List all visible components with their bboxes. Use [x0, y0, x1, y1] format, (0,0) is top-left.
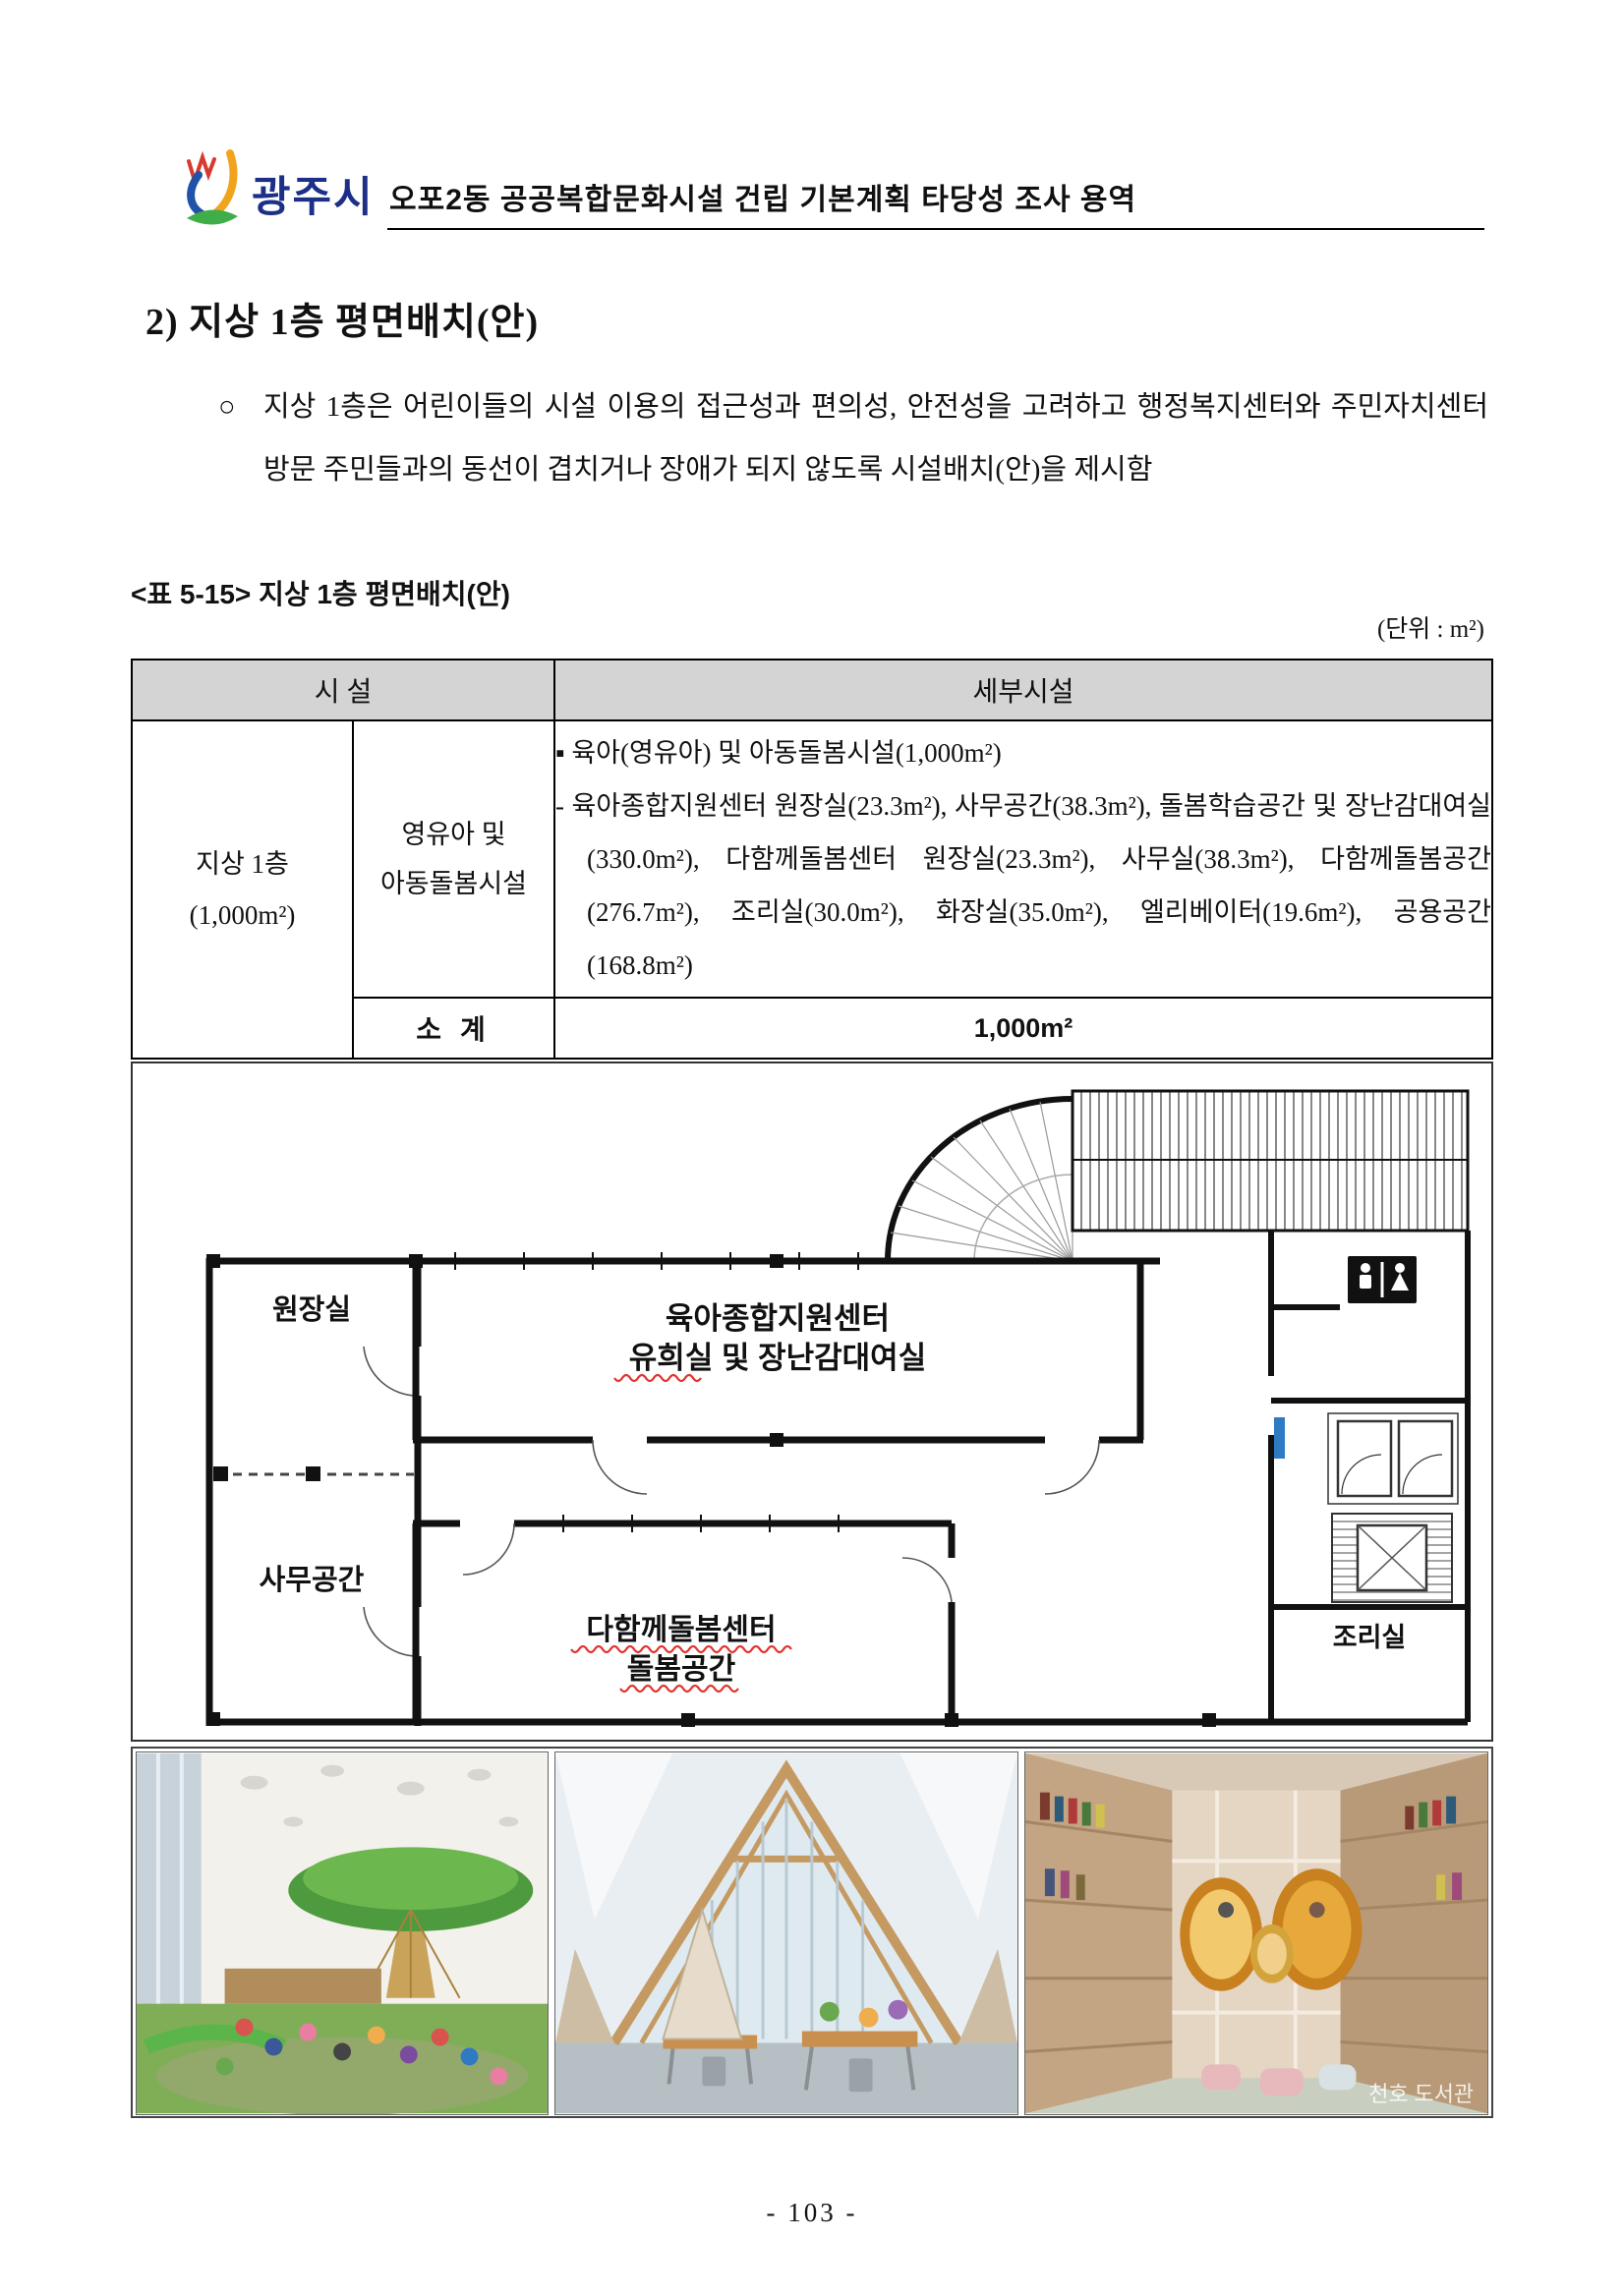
- label-director-room: 원장실: [272, 1293, 351, 1326]
- logo-text: 광주시: [252, 163, 375, 224]
- header-rule: [387, 228, 1484, 230]
- photo-library-nooks: 천호 도서관: [1024, 1751, 1488, 2115]
- circle-bullet: ○: [218, 375, 236, 438]
- document-page: 광주시 오포2동 공공복합문화시설 건립 기본계획 타당성 조사 용역 2) 지…: [0, 0, 1624, 2296]
- restroom-icon: [1348, 1256, 1417, 1303]
- reference-photos: 천호 도서관: [131, 1747, 1493, 2118]
- photo-watermark: 천호 도서관: [1368, 2082, 1474, 2106]
- cell-detail: ▪ 육아(영유아) 및 아동돌봄시설(1,000m²) - 육아종합지원센터 원…: [554, 720, 1492, 998]
- cell-floor: 지상 1층 (1,000m²): [132, 720, 353, 1059]
- header-facility: 시 설: [132, 660, 554, 720]
- facility-table: 시 설 세부시설 지상 1층 (1,000m²) 영유아 및 아동돌봄시설 ▪ …: [131, 659, 1493, 1060]
- internal-stair: [1332, 1514, 1452, 1602]
- label-support-center: 육아종합지원센터: [666, 1301, 890, 1336]
- table-header-row: 시 설 세부시설: [132, 660, 1492, 720]
- photo-children-play-area: [136, 1751, 549, 2115]
- section-heading: 2) 지상 1층 평면배치(안): [145, 291, 539, 345]
- table-caption: <표 5-15> 지상 1층 평면배치(안): [131, 573, 510, 612]
- label-care-center: 다함께돌봄센터: [586, 1614, 776, 1646]
- floor-label: 지상 1층: [133, 838, 352, 890]
- section-paragraph: ○ 지상 1층은 어린이들의 시설 이용의 접근성과 편의성, 안전성을 고려하…: [218, 375, 1488, 501]
- floor-plan: 원장실 사무공간 육아종합지원센터 유희실 및 장난감대여실 다함께돌봄센터 돌…: [131, 1062, 1493, 1742]
- stair-band: [1073, 1091, 1468, 1231]
- paragraph-text: 지상 1층은 어린이들의 시설 이용의 접근성과 편의성, 안전성을 고려하고 …: [263, 391, 1488, 486]
- table-row: 지상 1층 (1,000m²) 영유아 및 아동돌봄시설 ▪ 육아(영유아) 및…: [132, 720, 1492, 998]
- subtotal-label: 소 계: [353, 998, 554, 1059]
- header-detail: 세부시설: [554, 660, 1492, 720]
- gwangju-city-logo-icon: [175, 147, 250, 230]
- floor-plan-drawing: 원장실 사무공간 육아종합지원센터 유희실 및 장난감대여실 다함께돌봄센터 돌…: [131, 1062, 1493, 1742]
- photo-aframe-classroom: [554, 1751, 1018, 2115]
- floor-area: (1,000m²): [133, 890, 352, 941]
- label-care-space: 돌봄공간: [627, 1653, 736, 1686]
- blue-marker: [1274, 1417, 1285, 1459]
- detail-item-line: - 육아종합지원센터 원장실(23.3m²), 사무공간(38.3m²), 돌봄…: [555, 779, 1491, 992]
- label-support-center-2: 유희실 및 장난감대여실: [629, 1341, 926, 1375]
- label-kitchen: 조리실: [1333, 1623, 1407, 1652]
- unit-note: (단위 : m²): [1307, 609, 1484, 645]
- document-title: 오포2동 공공복합문화시설 건립 기본계획 타당성 조사 용역: [389, 175, 1136, 218]
- subtotal-value: 1,000m²: [554, 998, 1492, 1059]
- page-number: - 103 -: [0, 2198, 1624, 2228]
- label-office-space: 사무공간: [260, 1564, 365, 1596]
- cell-facility-name: 영유아 및 아동돌봄시설: [353, 720, 554, 998]
- detail-bullet-line: ▪ 육아(영유아) 및 아동돌봄시설(1,000m²): [555, 726, 1491, 779]
